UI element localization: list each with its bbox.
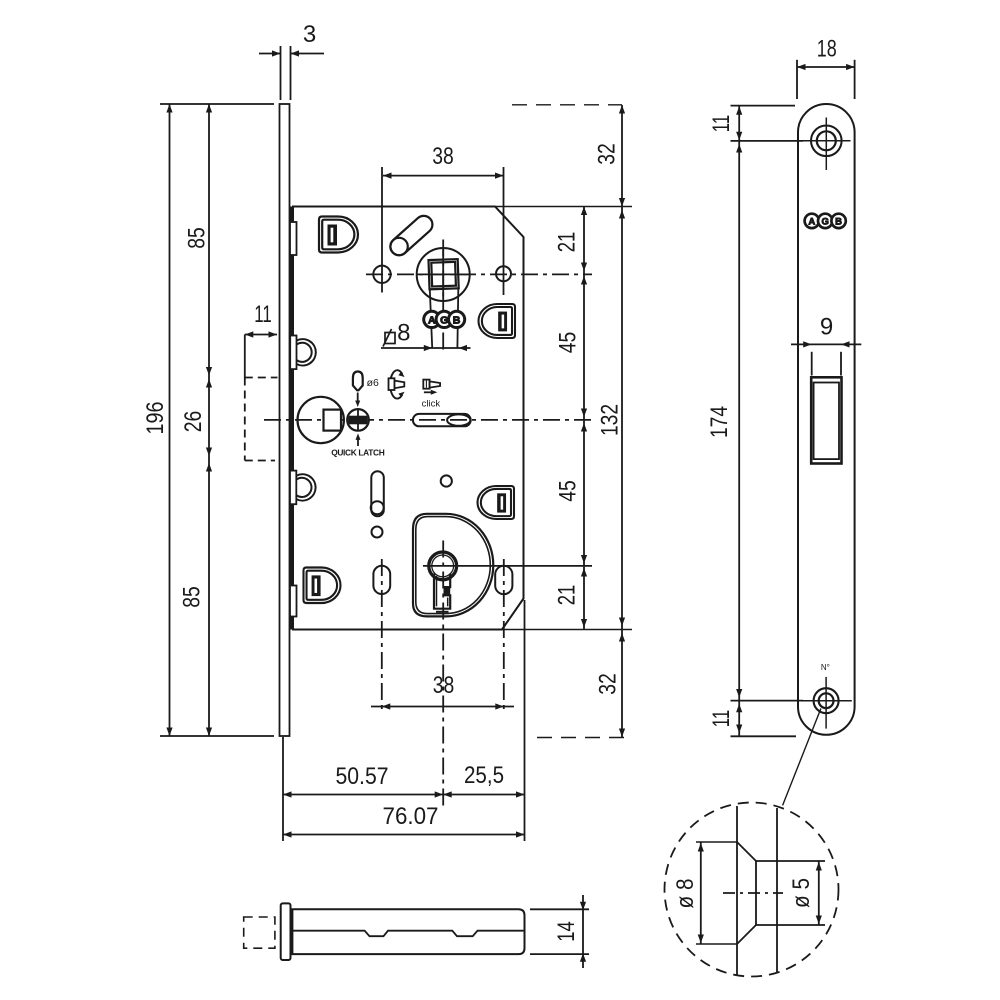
svg-text:25,5: 25,5	[464, 762, 504, 789]
svg-text:50.57: 50.57	[336, 763, 389, 790]
svg-text:21: 21	[553, 232, 580, 253]
svg-text:11: 11	[708, 710, 735, 728]
svg-text:B: B	[835, 216, 842, 227]
svg-text:85: 85	[183, 227, 210, 249]
svg-text:QUICK LATCH: QUICK LATCH	[331, 448, 385, 458]
svg-text:38: 38	[433, 672, 455, 699]
svg-text:ø 5: ø 5	[788, 878, 815, 908]
svg-text:9: 9	[820, 313, 833, 340]
svg-text:ø6: ø6	[367, 377, 379, 389]
svg-text:21: 21	[553, 585, 580, 606]
svg-text:A: A	[808, 216, 815, 227]
svg-text:18: 18	[817, 36, 837, 63]
svg-text:26: 26	[180, 411, 207, 433]
svg-text:click: click	[422, 398, 441, 409]
svg-text:N°: N°	[821, 663, 830, 672]
svg-text:132: 132	[596, 404, 623, 436]
svg-text:32: 32	[593, 143, 620, 165]
svg-text:11: 11	[254, 301, 272, 328]
svg-text:174: 174	[706, 406, 733, 438]
svg-text:45: 45	[554, 480, 581, 502]
svg-text:3: 3	[303, 21, 316, 48]
svg-text:B: B	[453, 314, 461, 326]
svg-text:11: 11	[708, 115, 735, 133]
svg-text:14: 14	[553, 921, 580, 942]
svg-text:76.07: 76.07	[383, 803, 439, 830]
svg-text:45: 45	[554, 332, 581, 354]
svg-text:85: 85	[178, 586, 205, 608]
svg-text:38: 38	[432, 143, 454, 170]
svg-text:32: 32	[594, 673, 621, 695]
svg-text:ø 8: ø 8	[672, 879, 699, 909]
svg-text:G: G	[822, 216, 829, 227]
svg-text:8: 8	[397, 319, 410, 346]
svg-text:196: 196	[142, 402, 169, 435]
